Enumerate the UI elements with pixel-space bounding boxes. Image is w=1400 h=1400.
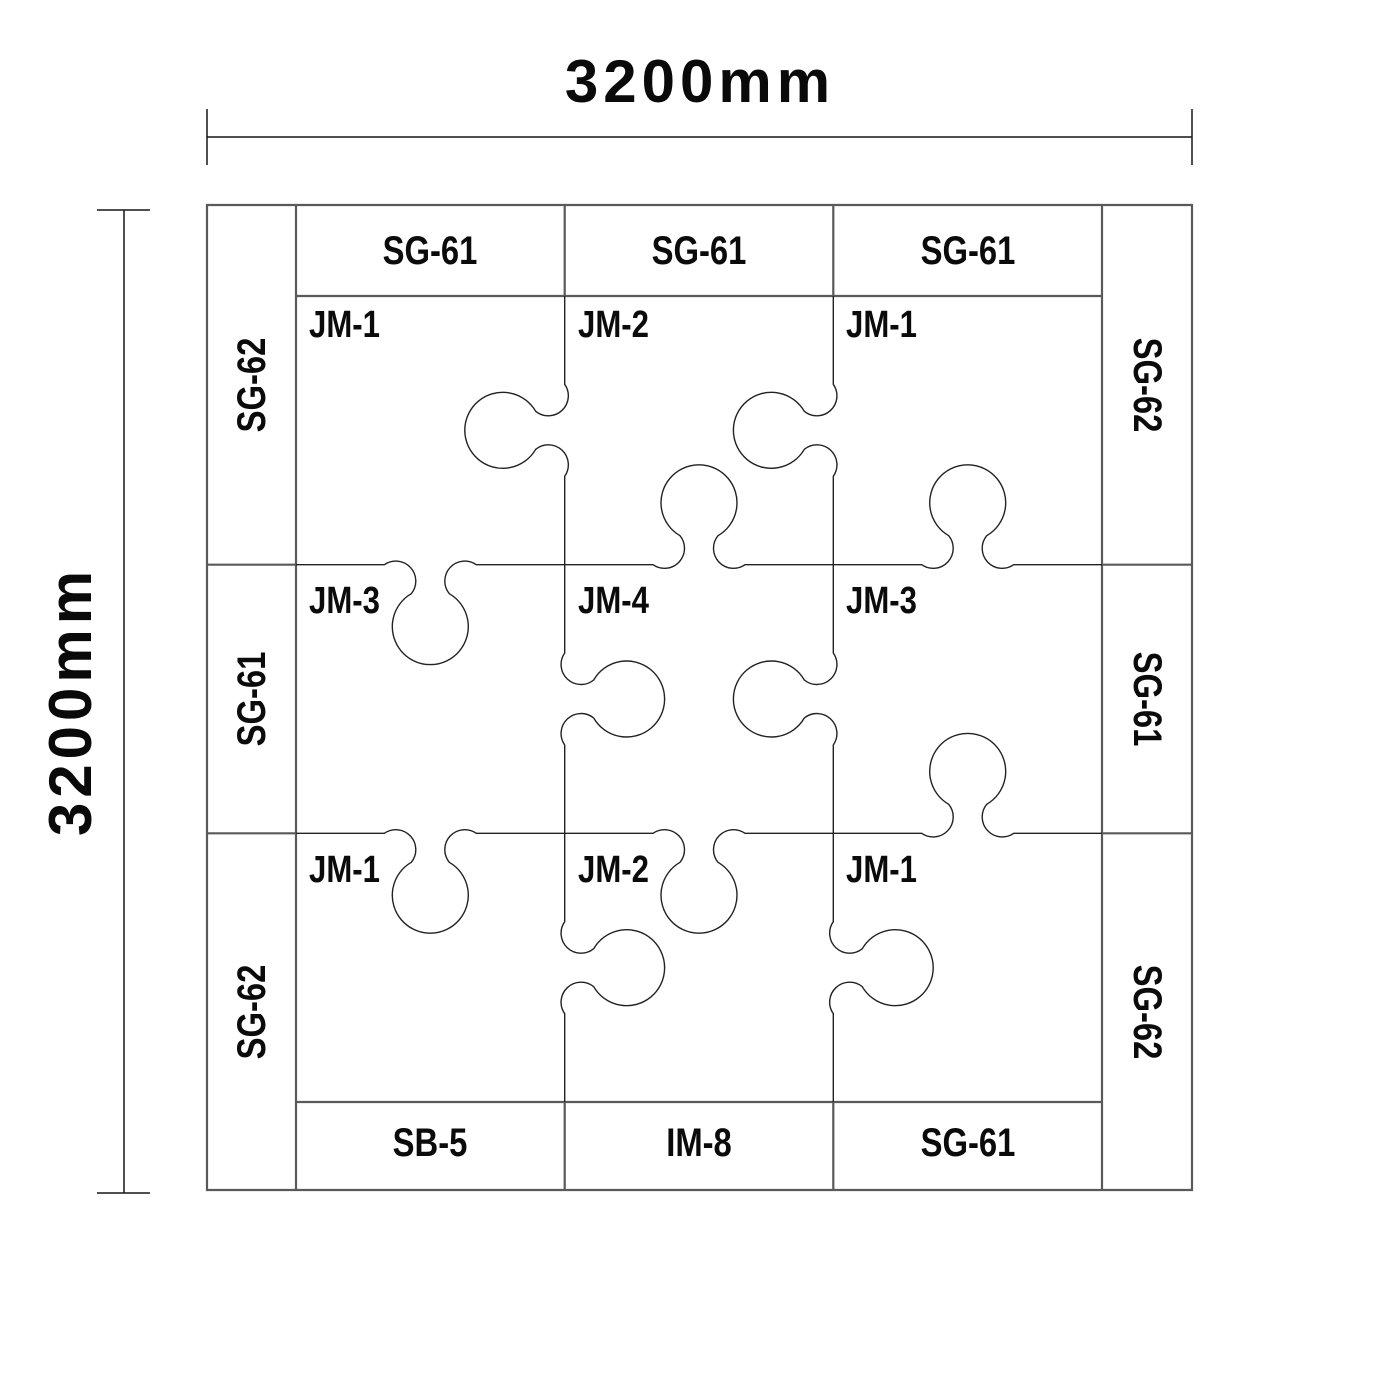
right-strip-label-0: SG-62 [1127, 337, 1167, 432]
height-dimension-label: 3200mm [41, 566, 101, 836]
piece-label-r3c3: JM-1 [846, 851, 917, 889]
right-strip-label-2: SG-62 [1127, 964, 1167, 1059]
piece-label-r3c2: JM-2 [578, 851, 649, 889]
top-strip-label-2: SG-61 [920, 231, 1015, 271]
top-strip-label-1: SG-61 [652, 231, 747, 271]
diagram-canvas: 3200mm 3200mm SG-61SG-61SG-61SB-5IM-8SG-… [0, 0, 1400, 1400]
piece-label-r2c2: JM-4 [578, 582, 649, 620]
bottom-strip-label-2: SG-61 [920, 1123, 1015, 1163]
right-strip-label-1: SG-61 [1127, 652, 1167, 747]
piece-label-r1c1: JM-1 [309, 306, 380, 344]
left-strip-label-1: SG-61 [232, 652, 272, 747]
piece-label-r1c2: JM-2 [578, 306, 649, 344]
piece-label-r2c1: JM-3 [309, 582, 380, 620]
piece-label-r3c1: JM-1 [309, 851, 380, 889]
width-dimension-label: 3200mm [565, 52, 835, 112]
left-strip-label-0: SG-62 [232, 337, 272, 432]
bottom-strip-label-1: IM-8 [666, 1123, 732, 1163]
left-strip-label-2: SG-62 [232, 964, 272, 1059]
labels-layer: 3200mm 3200mm SG-61SG-61SG-61SB-5IM-8SG-… [0, 0, 1400, 1400]
top-strip-label-0: SG-61 [383, 231, 478, 271]
piece-label-r1c3: JM-1 [846, 306, 917, 344]
piece-label-r2c3: JM-3 [846, 582, 917, 620]
bottom-strip-label-0: SB-5 [393, 1123, 468, 1163]
